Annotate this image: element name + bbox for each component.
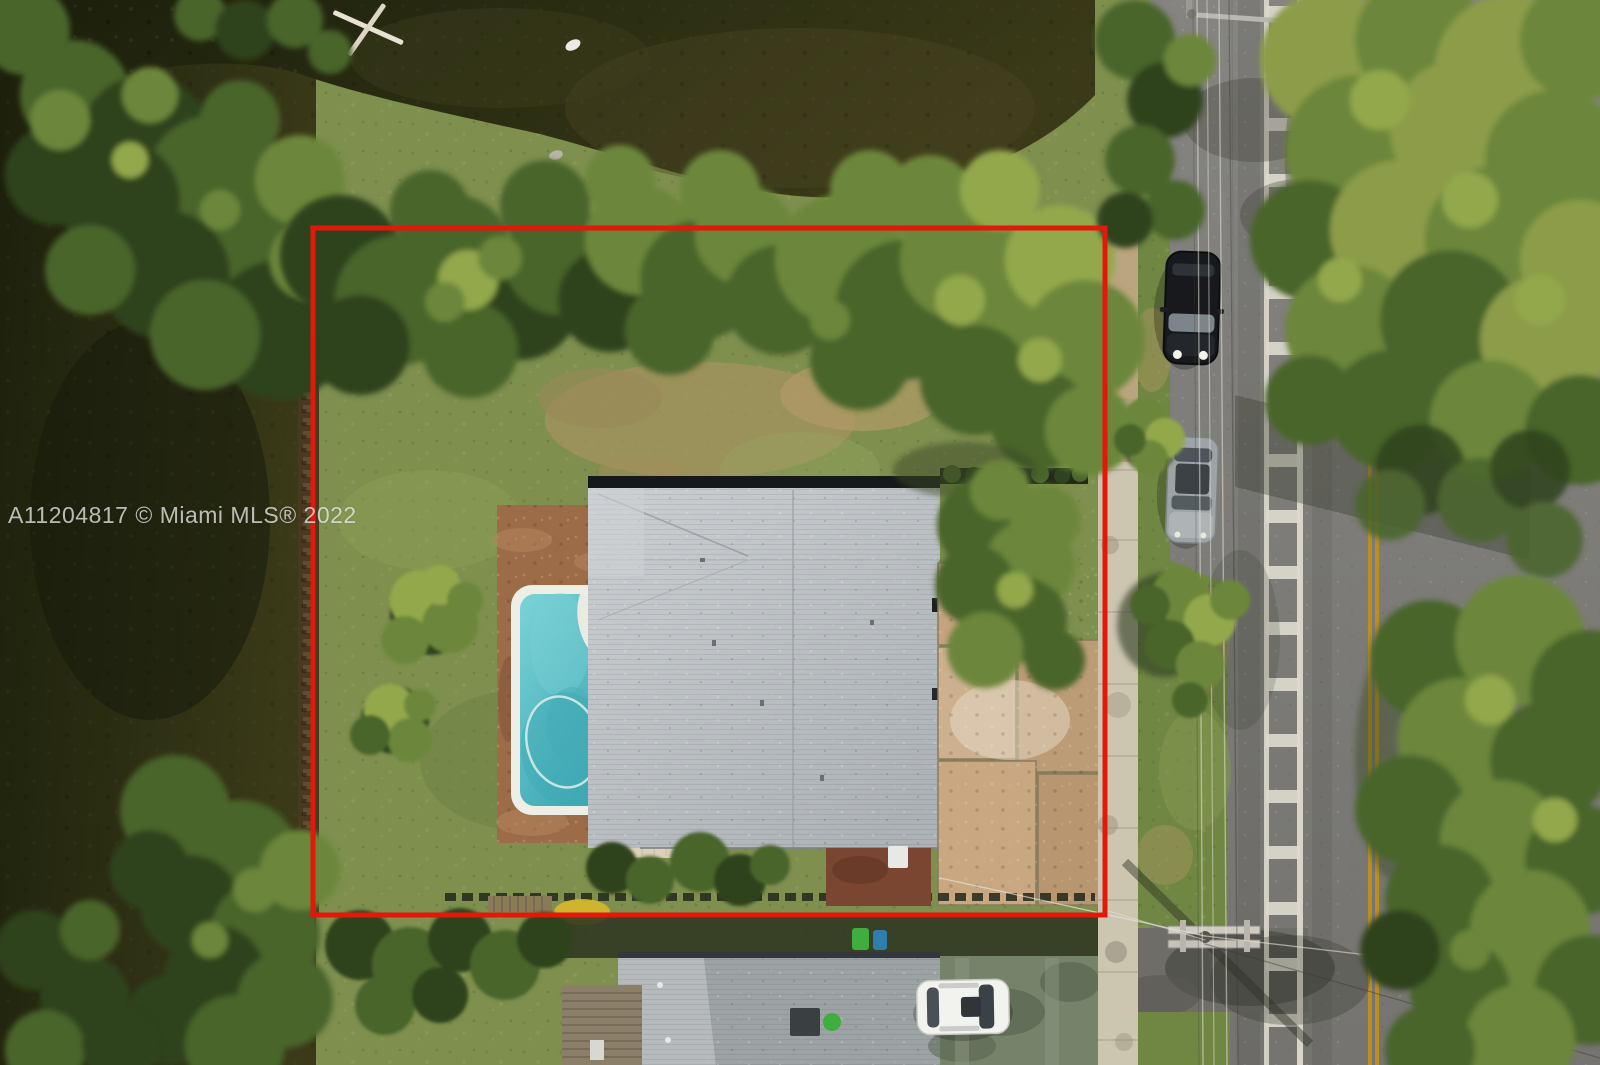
ac-unit (888, 846, 908, 868)
trash-bin-green-2 (823, 1013, 841, 1031)
mls-watermark: A11204817 © Miami MLS® 2022 (8, 502, 357, 529)
aerial-property-photo: % (0, 0, 1600, 1065)
trash-bin-green (852, 928, 869, 950)
trash-bin-blue (873, 930, 887, 950)
deck-cooler (590, 1040, 604, 1060)
roof-fascia (588, 476, 940, 490)
house-roof (588, 476, 942, 848)
neighbor-fence-shadow (540, 916, 1100, 958)
scene-svg: % (0, 0, 1600, 1065)
ac-unit-2 (790, 1008, 820, 1036)
mulch-shadow (832, 856, 888, 884)
canopy-top-right (1250, 0, 1600, 485)
wood-deck (562, 985, 642, 1065)
neighbor-house-roof (618, 952, 940, 1065)
neighbor-car (913, 979, 1014, 1042)
